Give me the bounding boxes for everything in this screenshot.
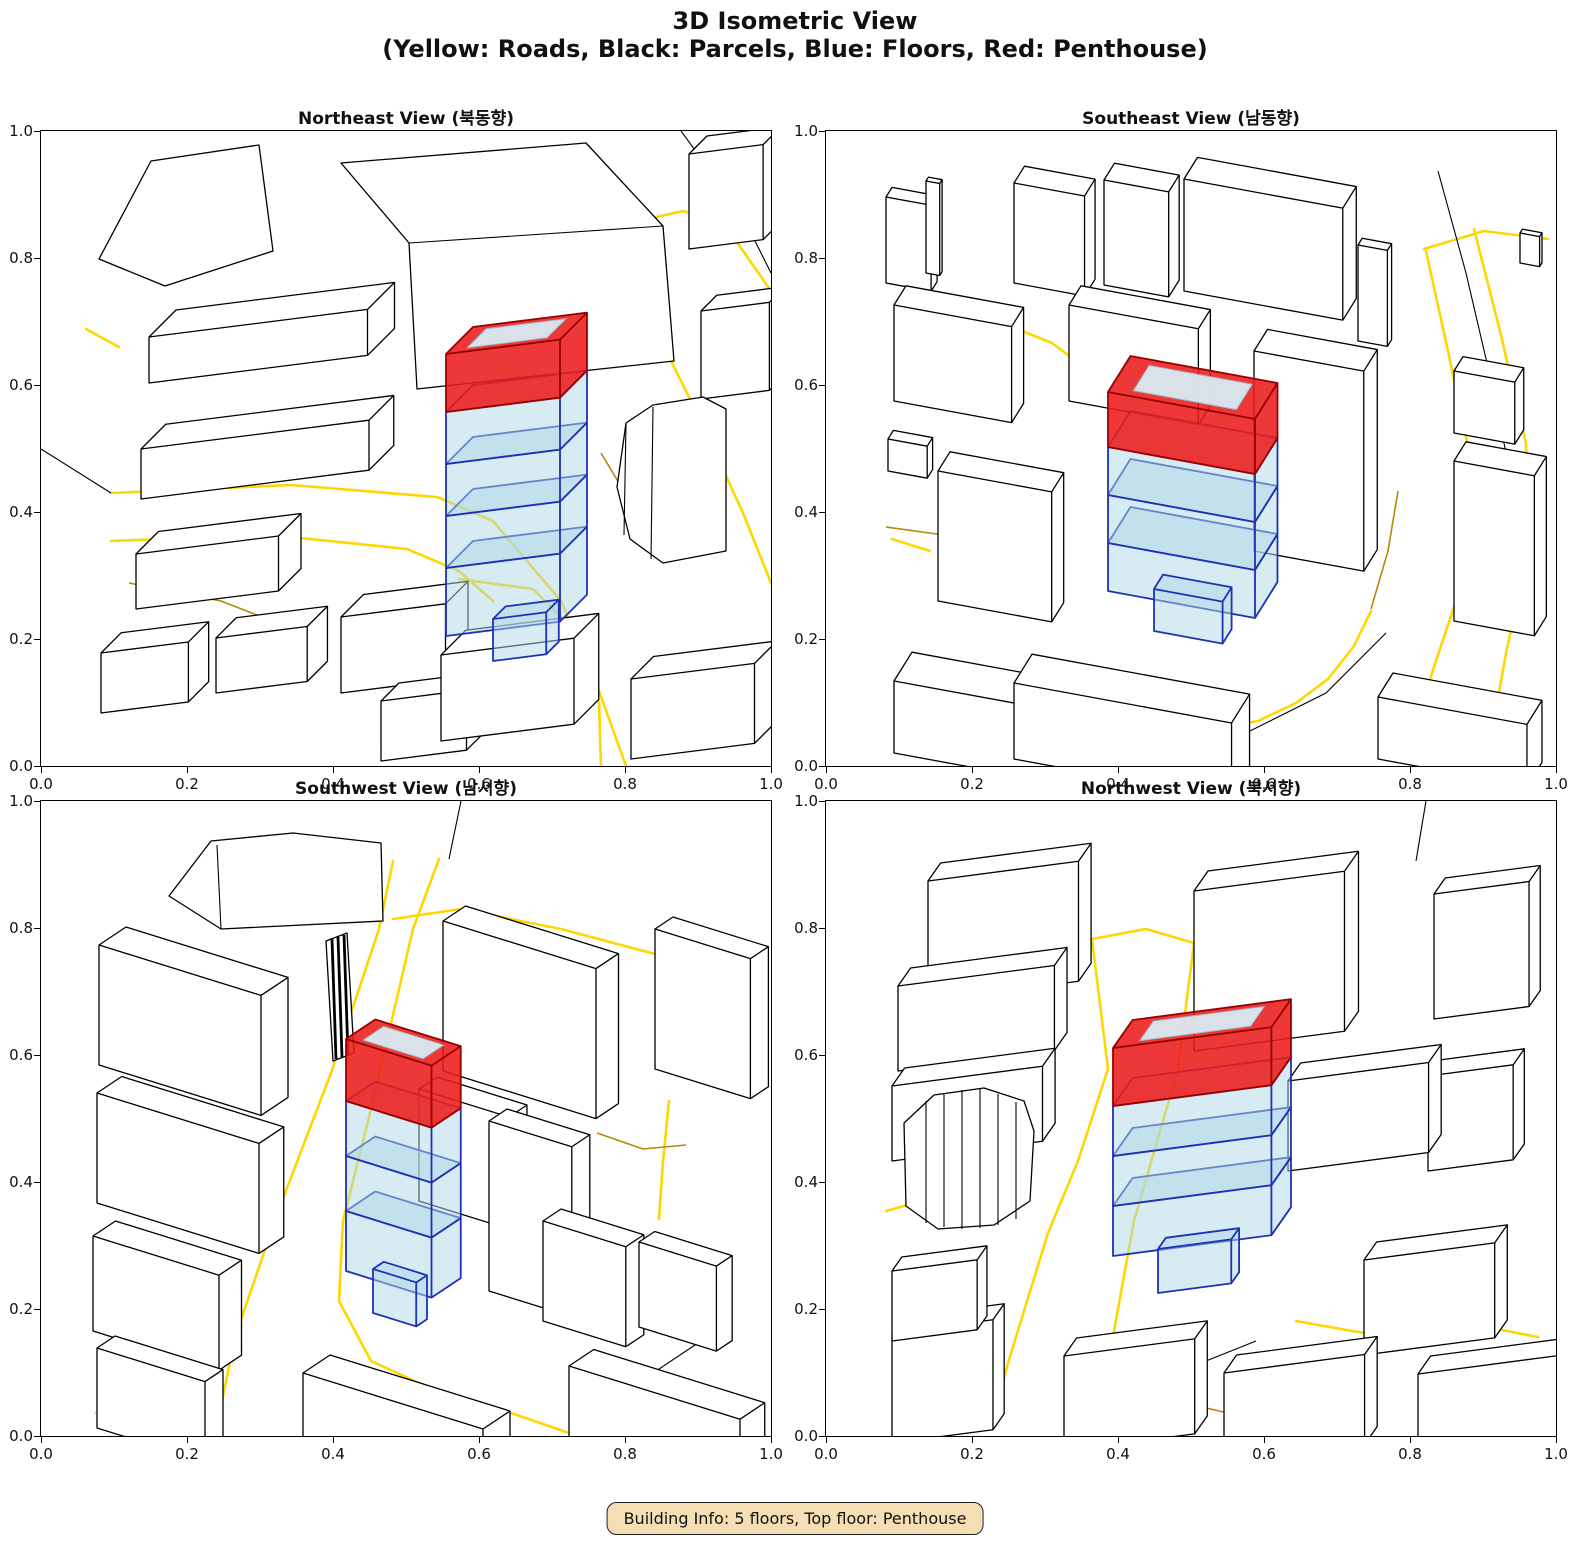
y-tick-label: 1.0: [0, 792, 33, 810]
y-tick-label: 0.2: [0, 630, 33, 648]
x-tick-mark: [972, 1437, 973, 1443]
x-tick-mark: [1556, 767, 1557, 773]
y-tick-label: 0.8: [784, 249, 818, 267]
y-tick-label: 0.2: [0, 1300, 33, 1318]
y-tick-label: 1.0: [0, 122, 33, 140]
subplot-title-southwest: Southwest View (남서향): [41, 774, 771, 799]
x-tick-mark: [333, 1437, 334, 1443]
y-tick-mark: [819, 385, 825, 386]
y-tick-mark: [819, 639, 825, 640]
y-tick-mark: [819, 801, 825, 802]
x-tick-label: 0.8: [613, 1445, 637, 1463]
x-tick-label: 0.0: [29, 1445, 53, 1463]
northeast-scene-canvas: [41, 131, 771, 766]
y-tick-mark: [34, 801, 40, 802]
x-tick-mark: [826, 767, 827, 773]
y-tick-mark: [34, 512, 40, 513]
figure: { "title": { "line1": "3D Isometric View…: [0, 0, 1590, 1560]
x-tick-mark: [1264, 767, 1265, 773]
x-tick-label: 1.0: [1544, 1445, 1568, 1463]
x-tick-label: 0.2: [175, 1445, 199, 1463]
x-tick-label: 0.6: [1252, 1445, 1276, 1463]
y-tick-mark: [819, 1055, 825, 1056]
y-tick-label: 0.4: [0, 1173, 33, 1191]
y-tick-label: 0.4: [784, 1173, 818, 1191]
x-tick-mark: [625, 767, 626, 773]
x-tick-mark: [771, 1437, 772, 1443]
y-tick-label: 0.2: [784, 630, 818, 648]
y-tick-mark: [34, 1309, 40, 1310]
x-tick-mark: [187, 767, 188, 773]
y-tick-mark: [819, 928, 825, 929]
southwest-scene-canvas: [41, 801, 771, 1436]
y-tick-label: 1.0: [784, 122, 818, 140]
x-tick-mark: [41, 767, 42, 773]
y-tick-label: 0.6: [784, 1046, 818, 1064]
y-tick-label: 0.6: [0, 376, 33, 394]
y-tick-label: 0.6: [0, 1046, 33, 1064]
y-tick-label: 0.6: [784, 376, 818, 394]
x-tick-mark: [1410, 1437, 1411, 1443]
x-tick-mark: [1556, 1437, 1557, 1443]
x-tick-mark: [625, 1437, 626, 1443]
y-tick-label: 0.0: [784, 1427, 818, 1445]
subplot-southeast: Southeast View (남동향) 0.00.00.20.20.40.40…: [825, 130, 1557, 767]
x-tick-mark: [41, 1437, 42, 1443]
y-tick-mark: [819, 258, 825, 259]
y-tick-label: 0.4: [784, 503, 818, 521]
x-tick-mark: [187, 1437, 188, 1443]
y-tick-mark: [34, 639, 40, 640]
y-tick-mark: [34, 131, 40, 132]
x-tick-mark: [479, 1437, 480, 1443]
y-tick-mark: [34, 1182, 40, 1183]
y-tick-label: 0.0: [0, 757, 33, 775]
x-tick-mark: [479, 767, 480, 773]
x-tick-mark: [1264, 1437, 1265, 1443]
x-tick-label: 0.4: [321, 1445, 345, 1463]
x-tick-mark: [1118, 767, 1119, 773]
y-tick-mark: [34, 1436, 40, 1437]
x-tick-mark: [972, 767, 973, 773]
y-tick-mark: [34, 766, 40, 767]
subplot-northeast: Northeast View (북동향) 0.00.00.20.20.40.40…: [40, 130, 772, 767]
y-tick-label: 0.4: [0, 503, 33, 521]
y-tick-mark: [34, 928, 40, 929]
y-tick-label: 0.8: [784, 919, 818, 937]
y-tick-label: 0.8: [0, 919, 33, 937]
northwest-scene-canvas: [826, 801, 1556, 1436]
y-tick-label: 0.0: [0, 1427, 33, 1445]
x-tick-label: 0.2: [960, 1445, 984, 1463]
y-tick-mark: [34, 258, 40, 259]
x-tick-label: 1.0: [759, 1445, 783, 1463]
subplot-title-southeast: Southeast View (남동향): [826, 104, 1556, 129]
y-tick-mark: [819, 766, 825, 767]
figure-title-line1: 3D Isometric View: [0, 6, 1590, 36]
figure-title-line2: (Yellow: Roads, Black: Parcels, Blue: Fl…: [0, 34, 1590, 64]
y-tick-mark: [34, 1055, 40, 1056]
x-tick-mark: [333, 767, 334, 773]
y-tick-mark: [819, 131, 825, 132]
x-tick-label: 0.4: [1106, 1445, 1130, 1463]
x-tick-label: 0.8: [1398, 1445, 1422, 1463]
subplot-title-northeast: Northeast View (북동향): [41, 104, 771, 129]
y-tick-label: 0.8: [0, 249, 33, 267]
x-tick-mark: [1118, 1437, 1119, 1443]
x-tick-mark: [771, 767, 772, 773]
y-tick-label: 0.0: [784, 757, 818, 775]
building-info-caption: Building Info: 5 floors, Top floor: Pent…: [607, 1502, 984, 1535]
y-tick-mark: [34, 385, 40, 386]
southeast-scene-canvas: [826, 131, 1556, 766]
y-tick-label: 1.0: [784, 792, 818, 810]
y-tick-label: 0.2: [784, 1300, 818, 1318]
y-tick-mark: [819, 1182, 825, 1183]
y-tick-mark: [819, 512, 825, 513]
x-tick-label: 0.0: [814, 1445, 838, 1463]
x-tick-label: 0.6: [467, 1445, 491, 1463]
subplot-title-northwest: Northwest View (북서향): [826, 774, 1556, 799]
y-tick-mark: [819, 1436, 825, 1437]
x-tick-mark: [826, 1437, 827, 1443]
subplot-southwest: Southwest View (남서향) 0.00.00.20.20.40.40…: [40, 800, 772, 1437]
x-tick-mark: [1410, 767, 1411, 773]
subplot-northwest: Northwest View (북서향) 0.00.00.20.20.40.40…: [825, 800, 1557, 1437]
y-tick-mark: [819, 1309, 825, 1310]
